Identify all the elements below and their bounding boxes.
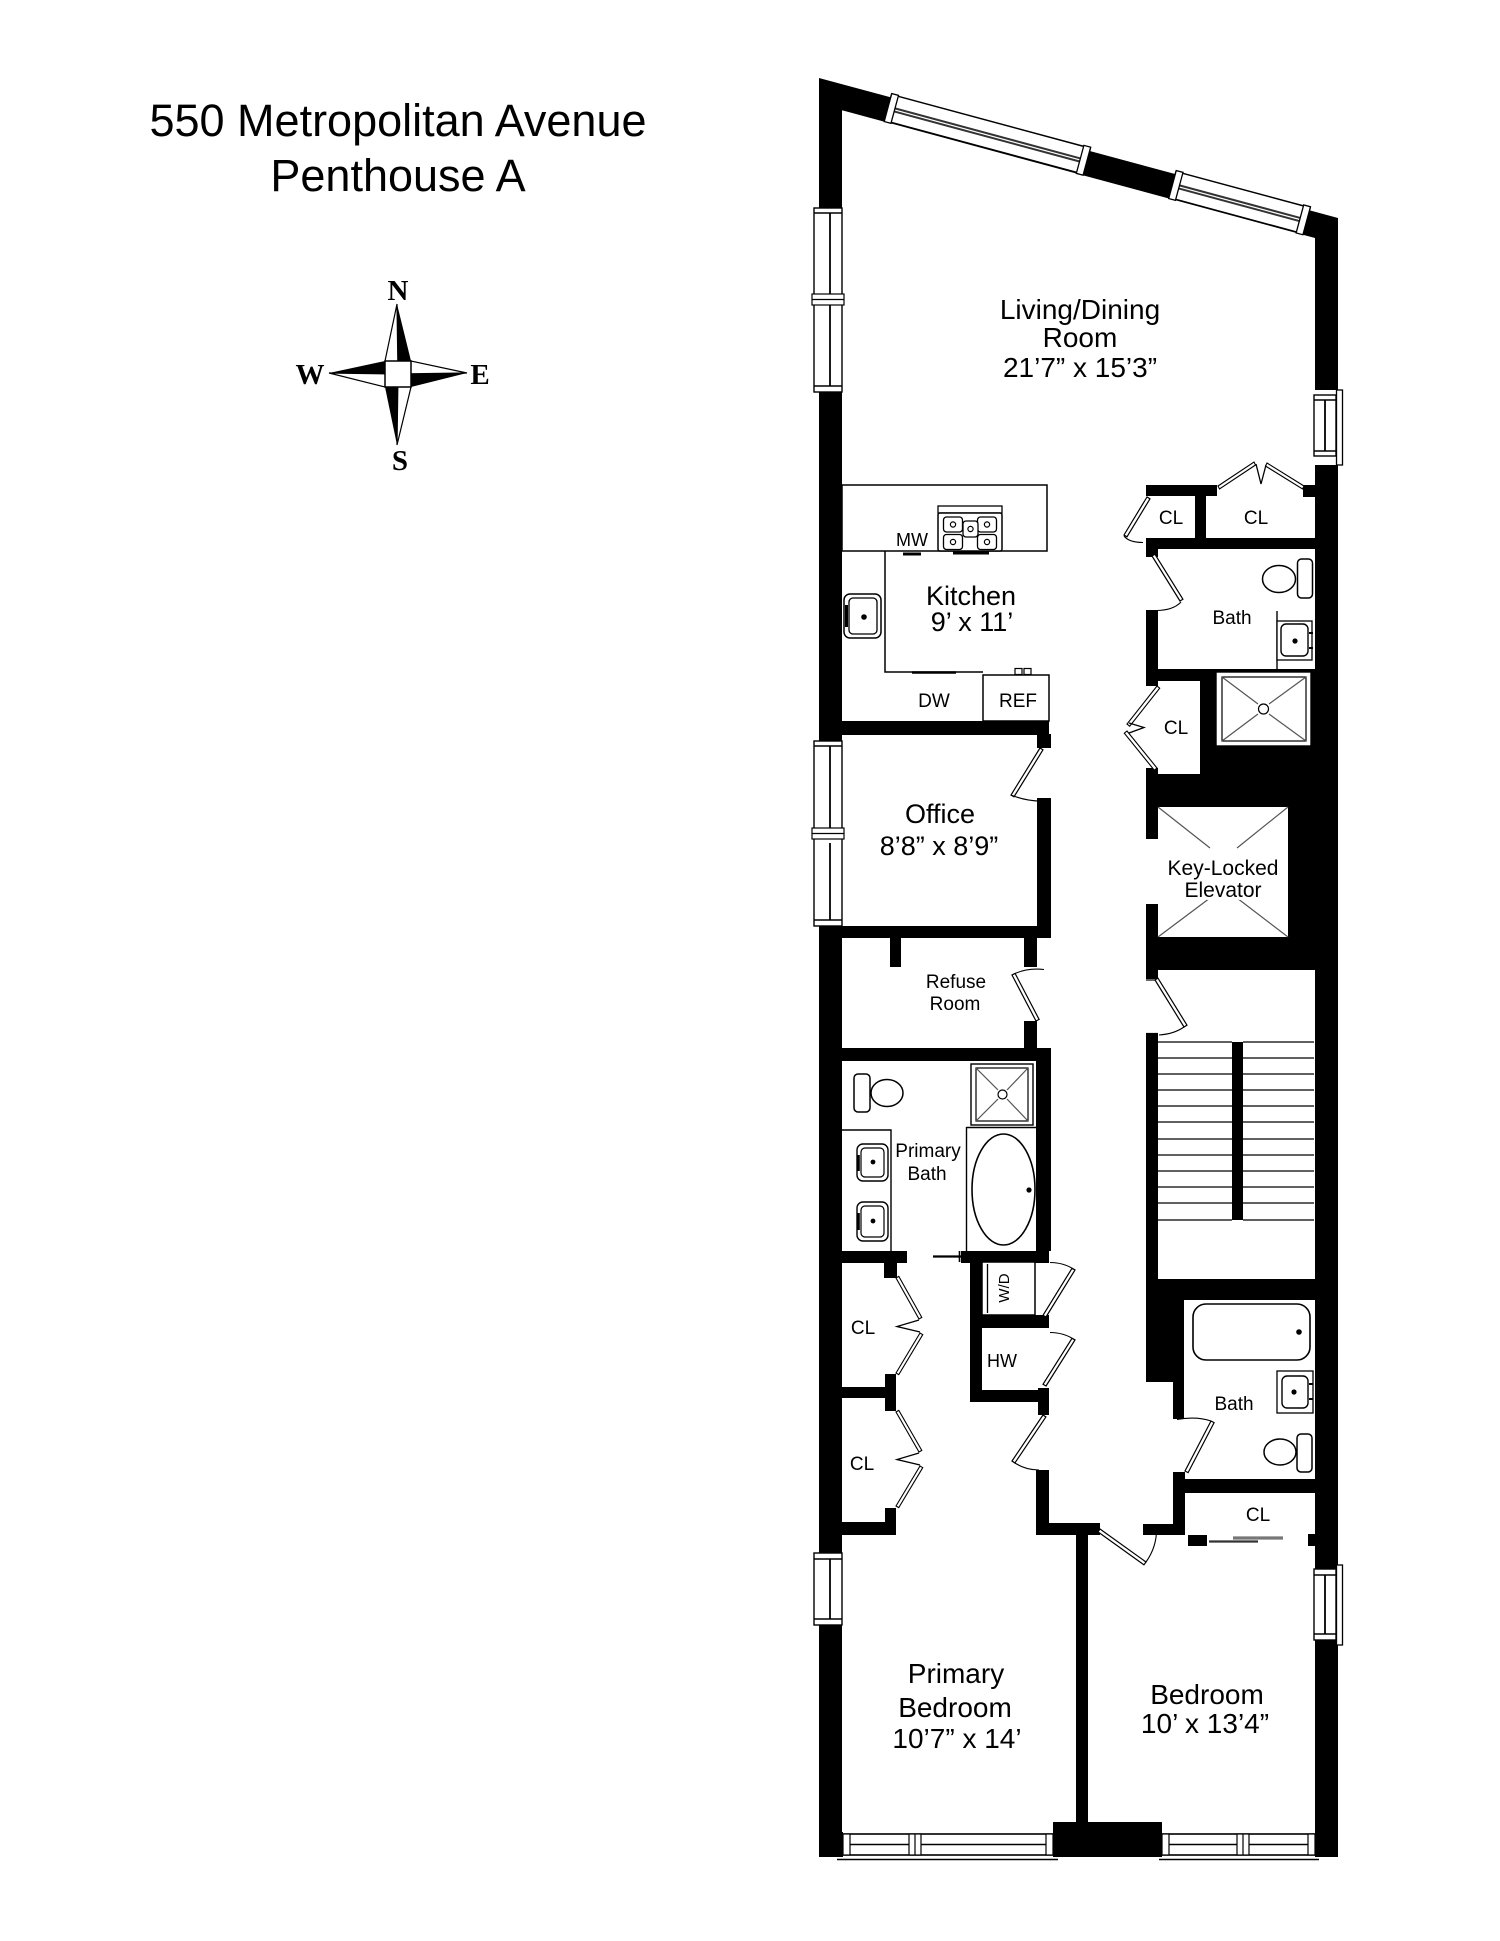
svg-text:Refuse: Refuse [926, 972, 986, 993]
svg-text:Elevator: Elevator [1184, 879, 1261, 902]
svg-text:S: S [392, 445, 408, 477]
svg-text:10’7” x 14’: 10’7” x 14’ [892, 1723, 1021, 1754]
svg-text:Primary: Primary [895, 1141, 961, 1162]
svg-text:Key-Locked: Key-Locked [1168, 857, 1279, 880]
svg-text:Bedroom: Bedroom [1150, 1679, 1264, 1710]
svg-text:MW: MW [896, 530, 928, 550]
svg-text:W: W [296, 359, 325, 391]
svg-text:Bedroom: Bedroom [898, 1692, 1012, 1723]
svg-text:E: E [470, 359, 489, 391]
svg-text:Penthouse A: Penthouse A [270, 150, 525, 201]
svg-text:Room: Room [1043, 322, 1118, 353]
svg-text:Primary: Primary [908, 1658, 1004, 1689]
svg-text:9’ x 11’: 9’ x 11’ [931, 607, 1014, 637]
svg-text:CL: CL [1246, 1505, 1270, 1526]
svg-text:8’8” x 8’9”: 8’8” x 8’9” [880, 831, 999, 861]
svg-text:CL: CL [1159, 508, 1183, 529]
svg-text:550 Metropolitan Avenue: 550 Metropolitan Avenue [149, 95, 646, 146]
svg-text:DW: DW [918, 691, 950, 712]
svg-text:CL: CL [1244, 508, 1268, 529]
svg-text:CL: CL [851, 1318, 875, 1339]
svg-text:REF: REF [999, 691, 1037, 712]
svg-text:N: N [388, 275, 409, 307]
svg-text:CL: CL [1164, 718, 1188, 739]
svg-text:Bath: Bath [907, 1164, 946, 1185]
svg-text:Bath: Bath [1212, 608, 1251, 629]
svg-text:Room: Room [930, 994, 981, 1015]
svg-text:Office: Office [905, 799, 975, 829]
svg-text:CL: CL [850, 1454, 874, 1475]
svg-text:10’ x 13’4”: 10’ x 13’4” [1141, 1708, 1269, 1739]
svg-text:21’7” x 15’3”: 21’7” x 15’3” [1003, 352, 1157, 383]
svg-text:HW: HW [987, 1351, 1017, 1371]
svg-text:W/D: W/D [996, 1273, 1013, 1302]
svg-text:Bath: Bath [1214, 1394, 1253, 1415]
svg-text:Living/Dining: Living/Dining [1000, 294, 1160, 325]
